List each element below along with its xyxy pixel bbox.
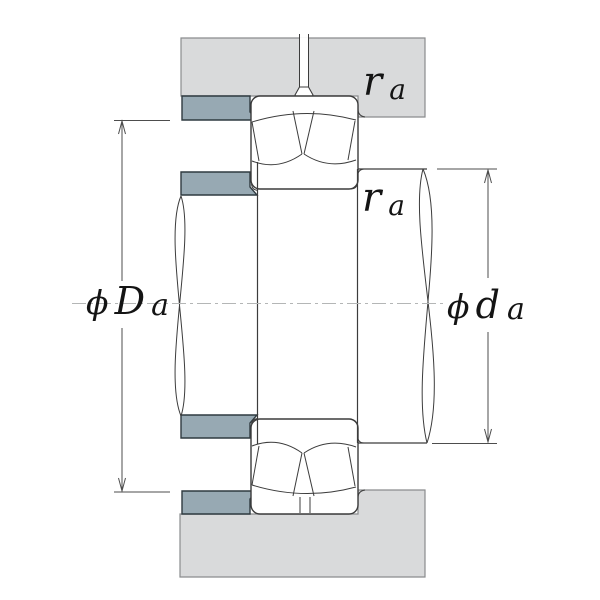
bearing-lower-section [251,419,358,514]
break-line-right [419,169,434,443]
abutment-ring-shaft-top [181,172,257,195]
label-shaft-shoulder-diameter: ϕ d a [447,283,525,327]
break-line-left [175,196,185,416]
label-housing-shoulder-diameter: ϕ D a [86,279,169,323]
abutment-ring-shaft-bottom [181,415,257,438]
abutment-ring-housing-top [182,96,257,120]
label-fillet-radius-side: r a [362,175,405,222]
diagram-canvas: ϕ D a ϕ d a r a r a [0,0,600,600]
abutment-ring-housing-bottom [182,491,257,514]
bearing-mounting-diagram: ϕ D a ϕ d a r a r a [0,0,600,600]
bearing-upper-section [251,96,358,189]
